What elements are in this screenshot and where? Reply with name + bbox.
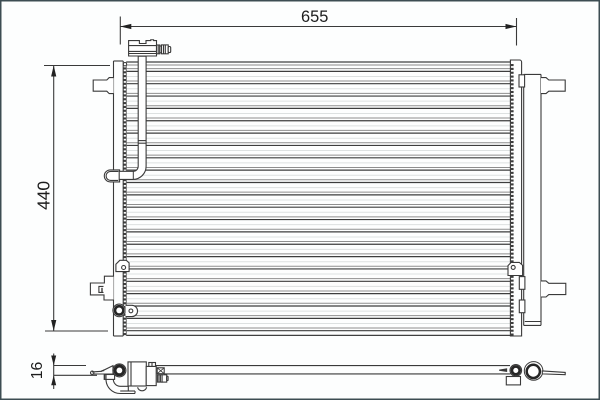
svg-text:16: 16 [29, 362, 46, 380]
svg-text:440: 440 [34, 181, 54, 210]
svg-text:655: 655 [301, 8, 328, 26]
